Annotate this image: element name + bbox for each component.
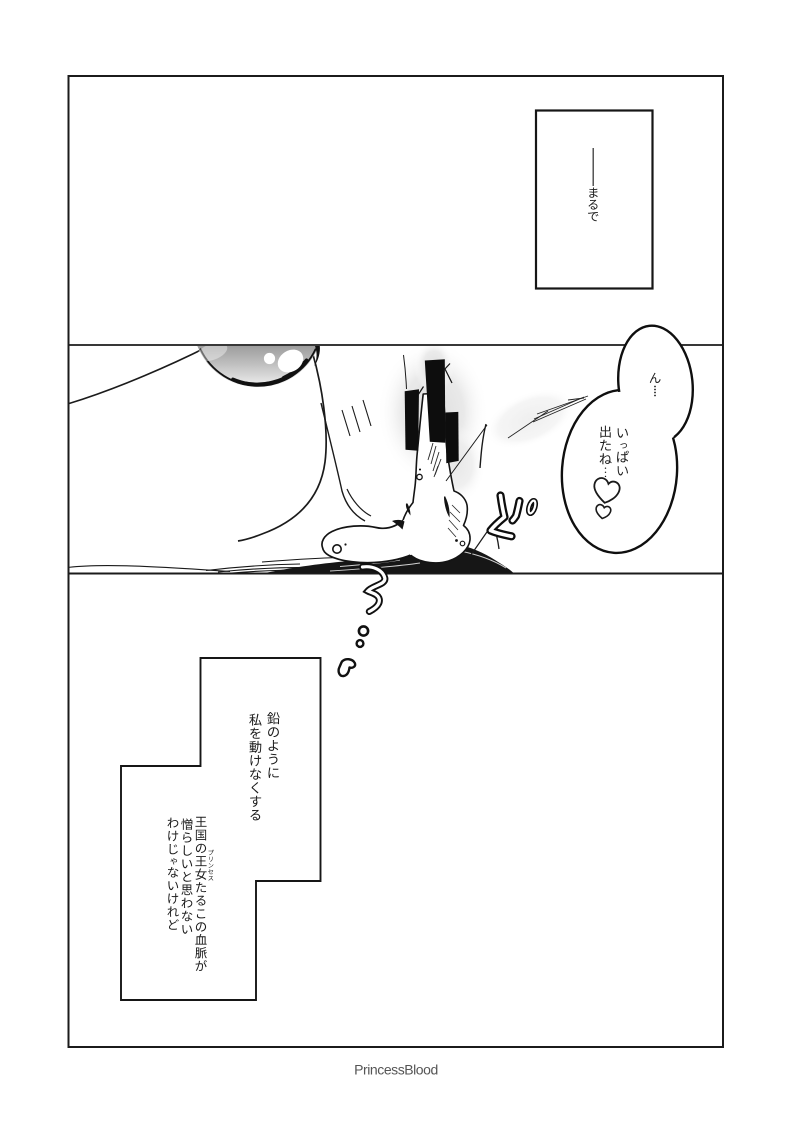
- svg-text:PrincessBlood: PrincessBlood: [354, 1062, 438, 1078]
